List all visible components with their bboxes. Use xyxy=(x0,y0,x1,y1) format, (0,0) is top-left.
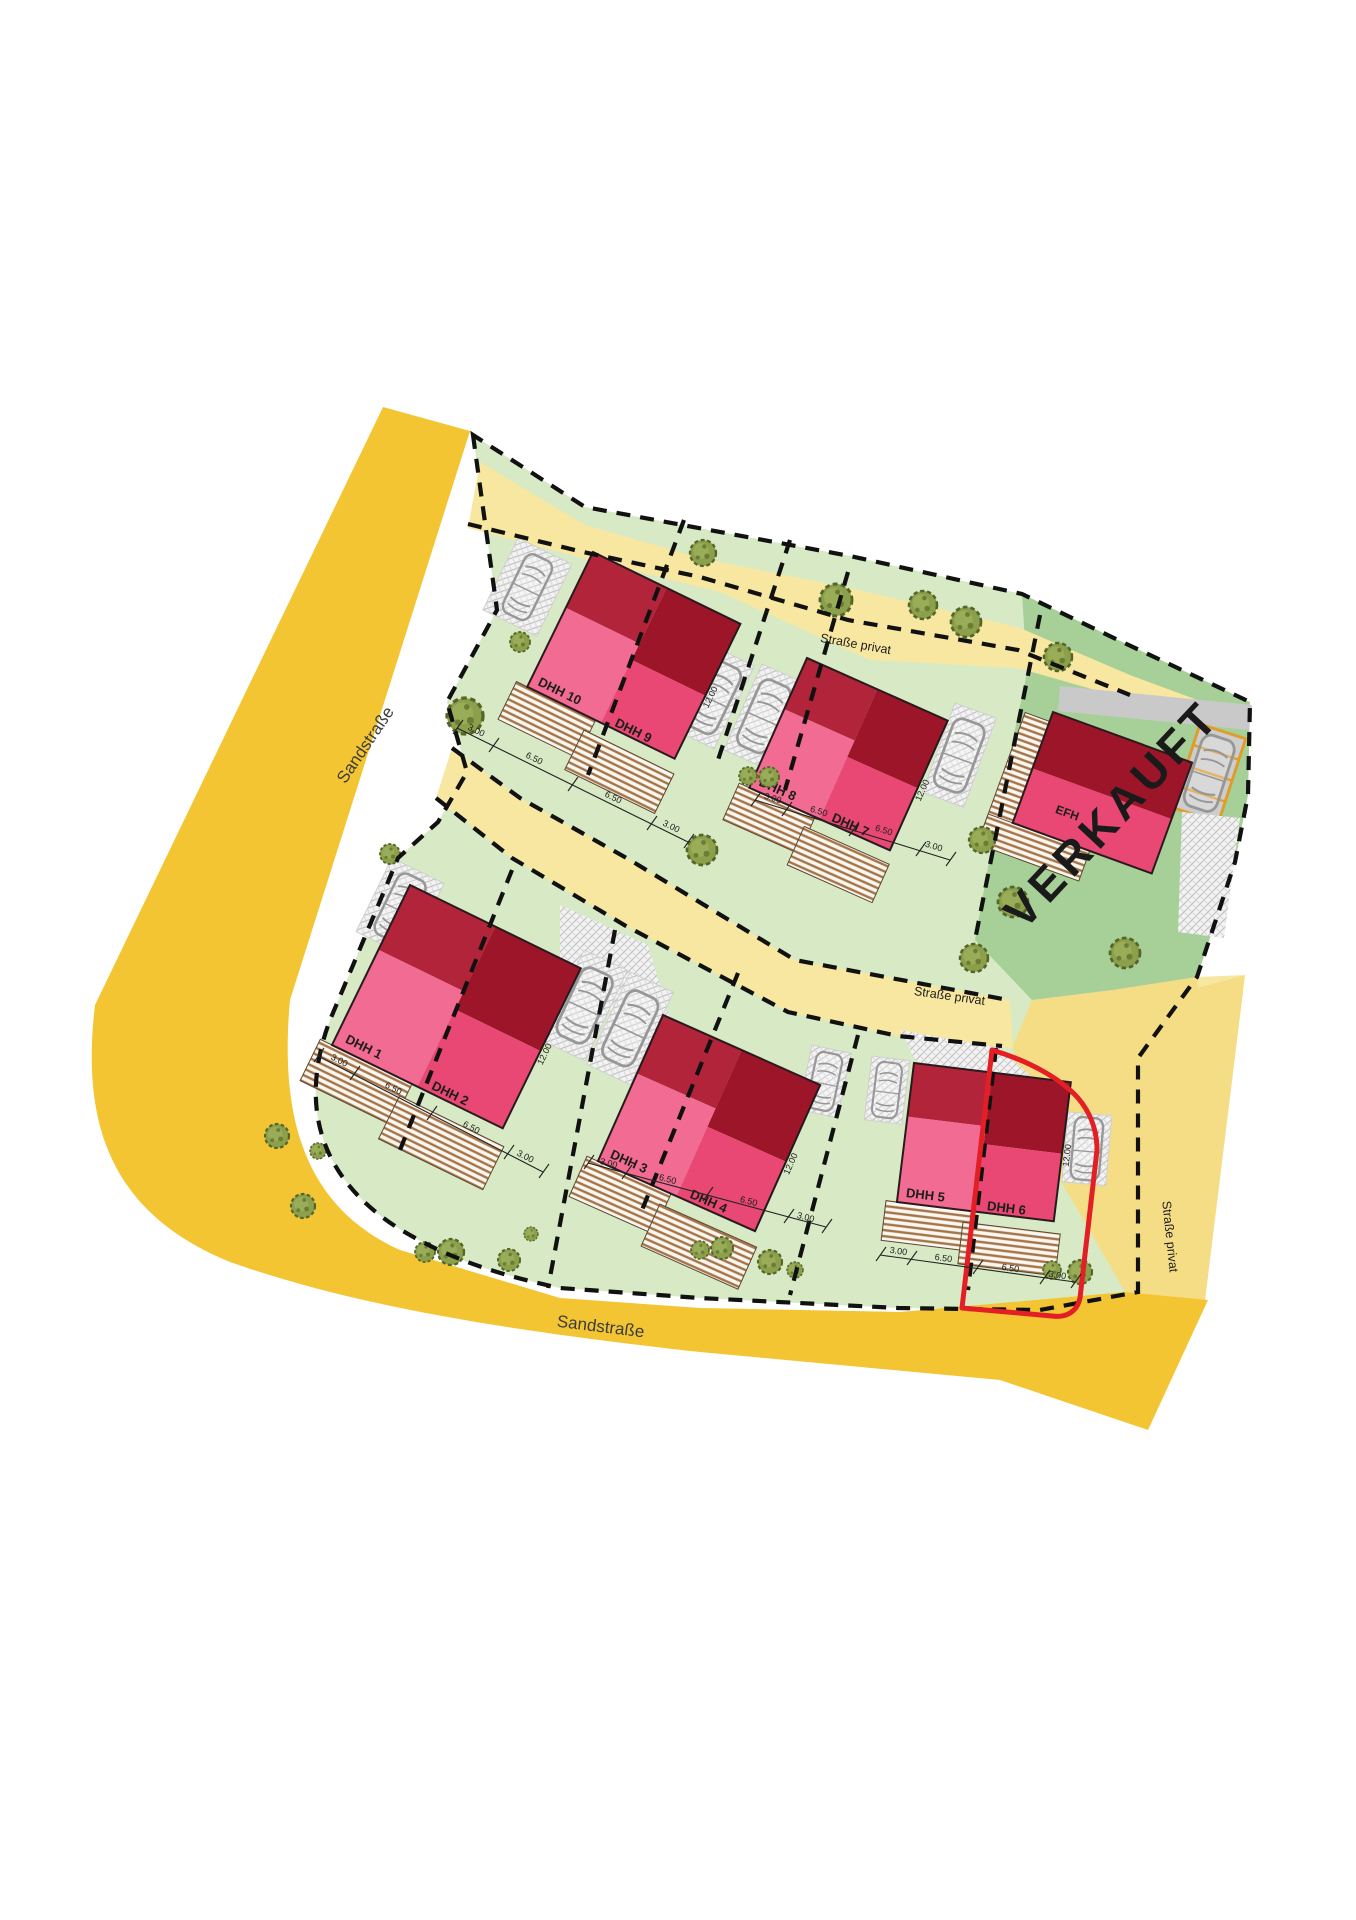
site-plan-page: 12.00 DHH 10 DHH 9 12.00 DHH 8 DHH 7 EFH xyxy=(0,0,1356,1920)
site-plan-map: 12.00 DHH 10 DHH 9 12.00 DHH 8 DHH 7 EFH xyxy=(0,0,1356,1920)
